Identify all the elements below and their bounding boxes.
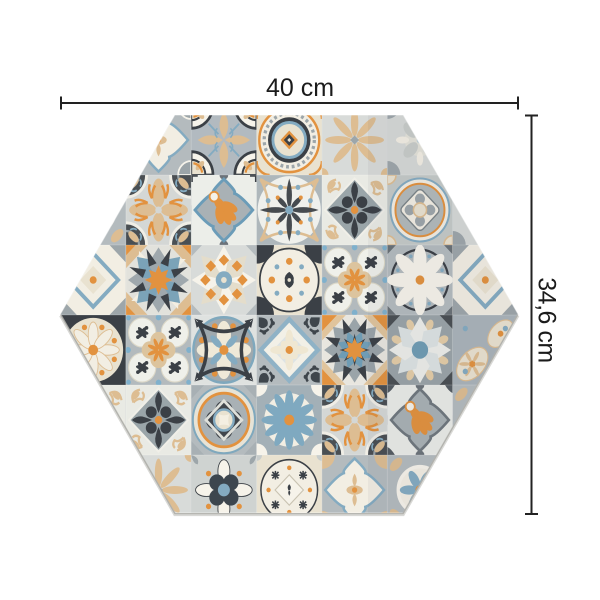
svg-text:34,6 cm: 34,6 cm — [533, 277, 561, 362]
svg-text:40 cm: 40 cm — [266, 74, 334, 102]
